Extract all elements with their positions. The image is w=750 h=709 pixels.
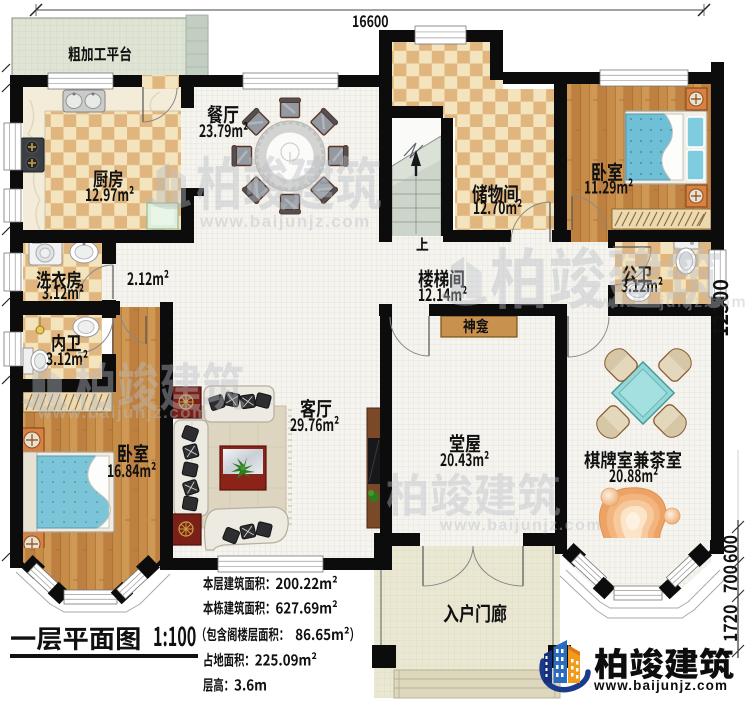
svg-text:www.baijunjz.com: www.baijunjz.com xyxy=(199,212,371,231)
svg-text:www.baijunjz.com: www.baijunjz.com xyxy=(593,678,728,693)
svg-text:www.baijunjz.com: www.baijunjz.com xyxy=(439,517,602,534)
svg-text:www.baijunjz.com: www.baijunjz.com xyxy=(37,403,209,422)
svg-text:www.baijunjz.com: www.baijunjz.com xyxy=(584,294,747,311)
